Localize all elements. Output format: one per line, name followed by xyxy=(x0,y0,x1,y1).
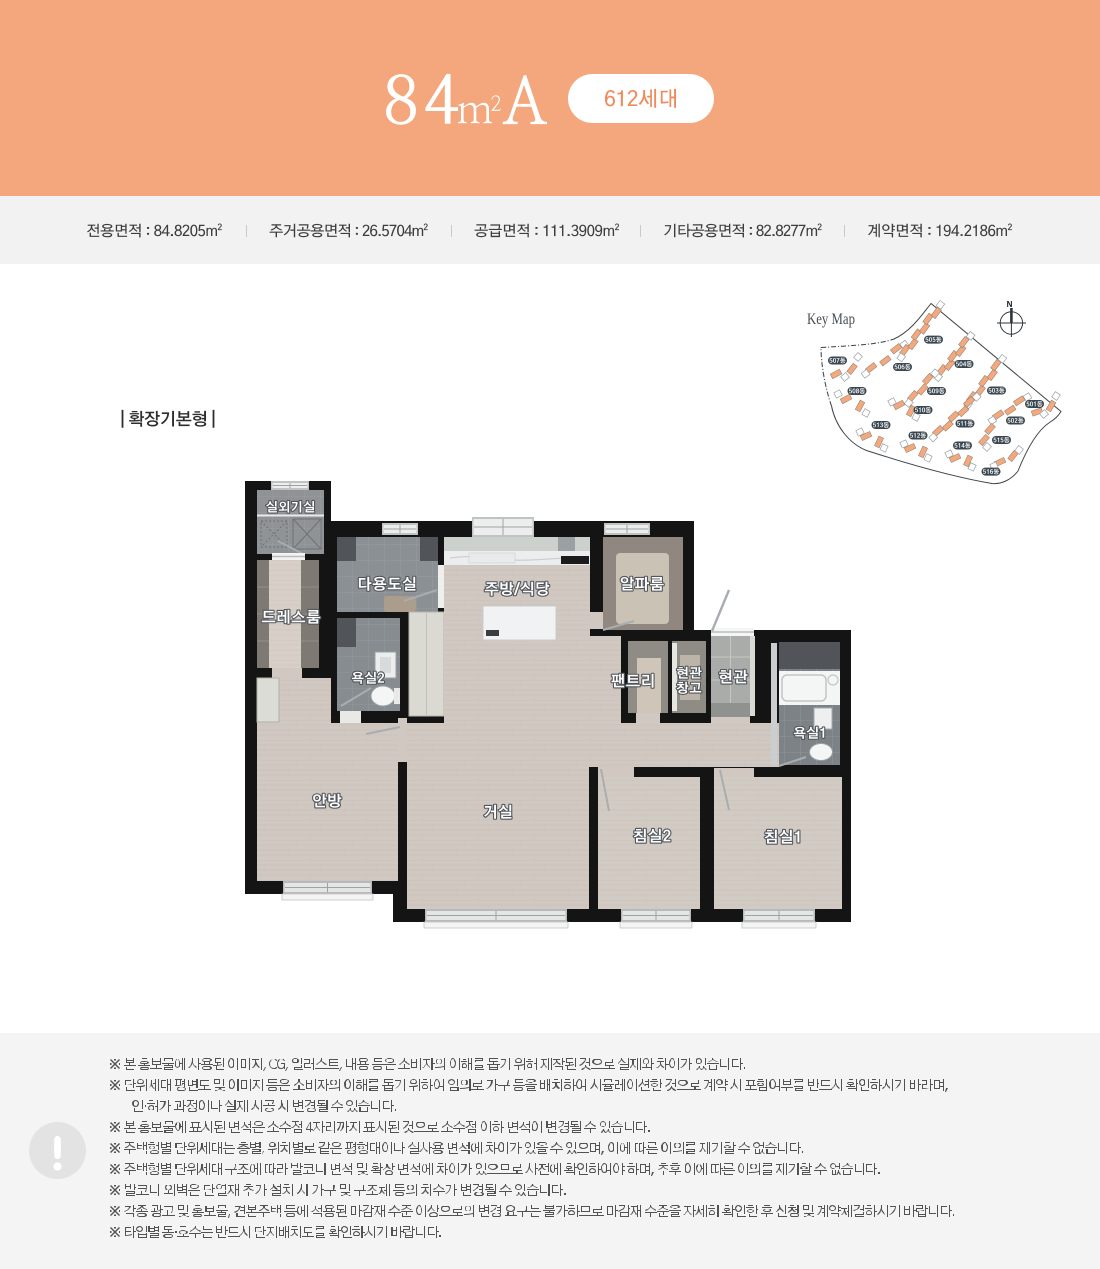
svg-text:Key Map: Key Map xyxy=(807,311,855,328)
svg-text:N: N xyxy=(1007,300,1013,309)
